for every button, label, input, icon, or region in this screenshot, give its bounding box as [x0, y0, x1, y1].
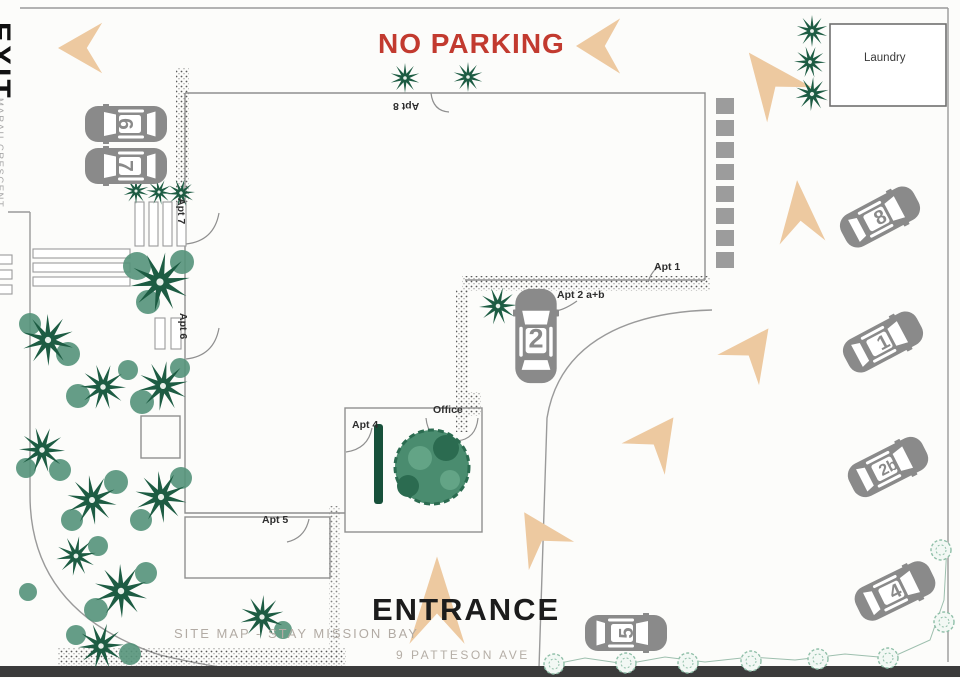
apt8-label: Apt 8	[393, 100, 419, 112]
laundry-label: Laundry	[864, 52, 906, 64]
apt2ab-label: Apt 2 a+b	[557, 289, 605, 301]
apt1-label: Apt 1	[654, 261, 680, 273]
car-2b: 2b	[842, 430, 934, 505]
address-label: 9 PATTESON AVE	[396, 648, 530, 662]
car-5-number: 5	[616, 627, 638, 638]
apt7-label: Apt 7	[175, 198, 187, 224]
apt4-label: Apt 4	[352, 419, 378, 431]
arrow-left-1	[58, 23, 102, 74]
parking-cars: 6 7 2 8 1 2b 4 5	[85, 103, 941, 654]
apt5-label: Apt 5	[262, 514, 288, 526]
car-1: 1	[837, 304, 929, 380]
walkway-pavers	[716, 98, 734, 268]
courtyard-tree	[374, 424, 469, 504]
building-outline	[141, 93, 705, 578]
no-parking-label: NO PARKING	[378, 28, 565, 60]
site-map-drawing: 6 7 2 8 1 2b 4 5	[0, 0, 960, 678]
arrow-upleft-top	[726, 35, 812, 122]
arrow-upright-1	[717, 313, 789, 385]
arrow-left-2	[576, 18, 620, 73]
laundry-building	[830, 24, 946, 106]
office-label: Office	[433, 404, 463, 416]
car-6-number: 6	[114, 118, 137, 130]
street-name-label: MARAU CRESCENT	[0, 98, 5, 208]
apt6-label: Apt 6	[177, 313, 189, 339]
car-7: 7	[85, 145, 167, 187]
car-5: 5	[585, 612, 667, 654]
car-7-number: 7	[114, 160, 137, 172]
car-4: 4	[849, 554, 941, 628]
site-map-title: SITE MAP - STAY MISSION BAY	[174, 626, 419, 641]
arrow-up-right-lane	[774, 178, 825, 244]
car-6: 6	[85, 103, 167, 145]
car-2: 2	[512, 289, 560, 383]
site-map-page: 6 7 2 8 1 2b 4 5 EXIT MARAU	[0, 0, 960, 678]
entrance-label: ENTRANCE	[372, 592, 560, 628]
arrow-upright-2	[622, 402, 695, 475]
car-2-number: 2	[528, 323, 543, 353]
car-8: 8	[834, 179, 926, 255]
exit-label: EXIT	[0, 22, 16, 101]
arrow-upleft-drive	[502, 498, 575, 570]
hedge-strip	[374, 424, 383, 504]
